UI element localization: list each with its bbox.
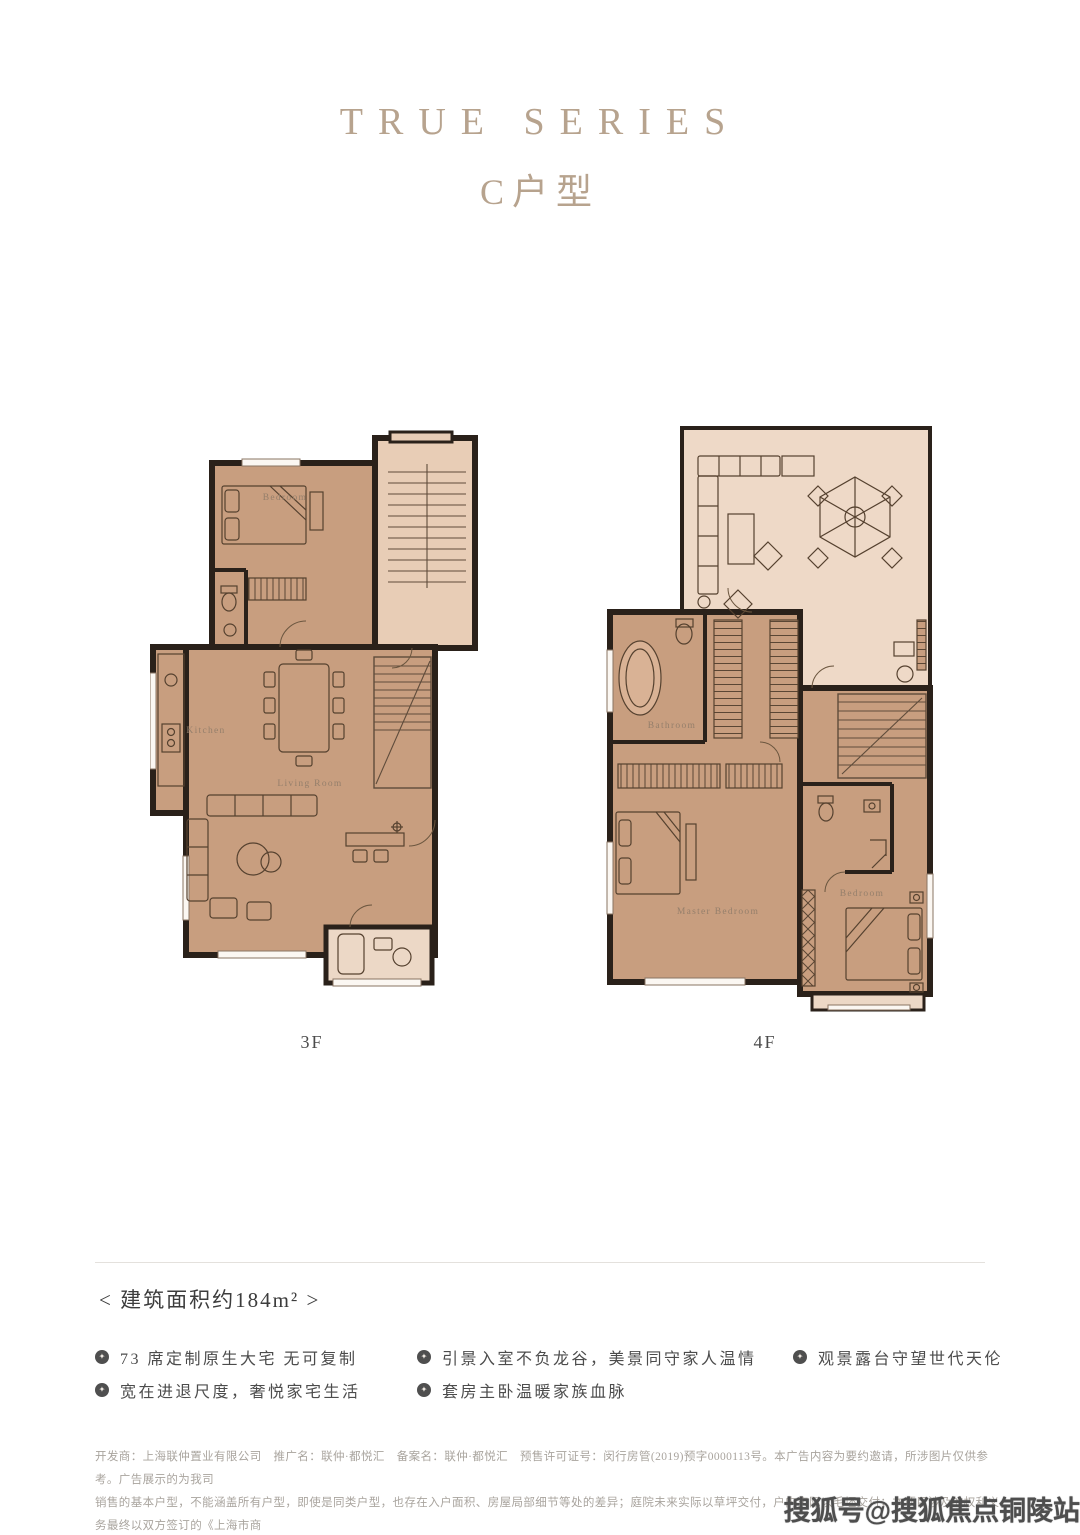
feature-item: ✦ 套房主卧温暖家族血脉 — [417, 1378, 627, 1402]
building-area-text: < 建筑面积约184m² > — [99, 1284, 320, 1314]
feature-item: ✦ 73 席定制原生大宅 无可复制 — [95, 1345, 358, 1369]
feature-text: 73 席定制原生大宅 无可复制 — [120, 1345, 358, 1369]
room-label-kitchen-3f: Kitchen — [186, 726, 225, 736]
room-label-master-bedroom-4f: Master Bedroom — [677, 907, 759, 917]
floor-label-4f: 4F — [753, 1032, 776, 1053]
brochure-page: TRUE SERIES C户型 — [0, 0, 1080, 1535]
circled-ornament-icon: ✦ — [95, 1350, 109, 1364]
room-label-bedroom-4f: Bedroom — [840, 889, 884, 899]
feature-text: 观景露台守望世代天伦 — [818, 1345, 1003, 1369]
circled-ornament-icon: ✦ — [95, 1383, 109, 1397]
circled-ornament-icon: ✦ — [417, 1350, 431, 1364]
circled-ornament-icon: ✦ — [793, 1350, 807, 1364]
feature-item: ✦ 引景入室不负龙谷，美景同守家人温情 — [417, 1345, 757, 1369]
floorplan-4f: Bathroom Master Bedroom Bedroom — [600, 422, 940, 1012]
floor-label-3f: 3F — [300, 1032, 323, 1053]
room-label-bedroom-3f: Bedroom — [263, 493, 307, 503]
section-divider — [95, 1262, 985, 1263]
feature-text: 宽在进退尺度，奢悦家宅生活 — [120, 1378, 361, 1402]
room-label-living-3f: Living Room — [277, 779, 342, 789]
room-label-bathroom-4f: Bathroom — [648, 721, 696, 731]
floorplan-3f: Bedroom Kitchen Living Room — [150, 430, 480, 1010]
disclaimer-line: 开发商：上海联仲置业有限公司 推广名：联仲·都悦汇 备案名：联仲·都悦汇 预售许… — [95, 1446, 1005, 1492]
feature-item: ✦ 观景露台守望世代天伦 — [793, 1345, 1003, 1369]
feature-text: 套房主卧温暖家族血脉 — [442, 1378, 627, 1402]
circled-ornament-icon: ✦ — [417, 1383, 431, 1397]
unit-type-title: C户型 — [0, 163, 1080, 215]
feature-item: ✦ 宽在进退尺度，奢悦家宅生活 — [95, 1378, 361, 1402]
sohu-watermark: 搜狐号@搜狐焦点铜陵站 — [784, 1489, 1080, 1528]
series-title: TRUE SERIES — [0, 100, 1080, 144]
feature-text: 引景入室不负龙谷，美景同守家人温情 — [442, 1345, 757, 1369]
